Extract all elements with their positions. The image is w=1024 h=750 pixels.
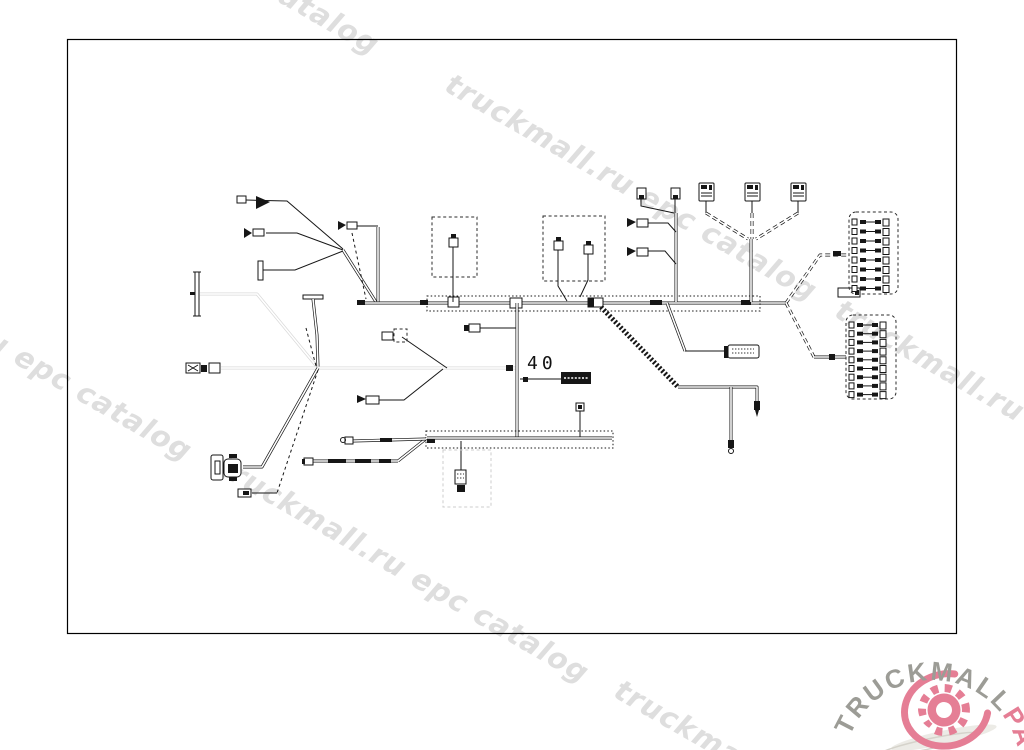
t-terminal — [303, 295, 323, 368]
hatched-branch — [601, 307, 760, 454]
large-connector-3 — [791, 183, 806, 201]
watermark-text: truckmall.ru epc catalog — [830, 293, 1024, 534]
reference-box-2 — [543, 216, 605, 301]
reference-box-1 — [432, 217, 477, 302]
fuse-block-1 — [849, 212, 898, 294]
reference-box-3 — [443, 450, 491, 507]
callout-40[interactable]: 40 — [527, 353, 557, 374]
catalog-page: truckmall.ru epc catalog truckmall.ru ep… — [0, 0, 1024, 750]
central-vertical-trunk — [357, 303, 517, 438]
left-multi-connector — [186, 363, 220, 373]
watermark-text: truckmall.ru epc catalog — [212, 449, 596, 690]
splice-tick — [506, 365, 513, 371]
left-bar-terminal — [190, 272, 318, 368]
watermark-text: truckmall.ru epc catalog — [440, 67, 824, 308]
watermark-layer: truckmall.ru epc catalog truckmall.ru ep… — [0, 0, 1024, 750]
upper-left-connector-cluster — [237, 196, 378, 302]
watermark-text: truckmall.ru epc catalog — [0, 227, 198, 468]
lower-trunk — [302, 403, 613, 507]
watermark-text: truckmall.ru epc catalog — [2, 0, 386, 62]
large-connector-2 — [745, 183, 760, 201]
wiring-harness-diagram: 40 — [186, 183, 898, 507]
large-connector-1 — [699, 183, 714, 201]
